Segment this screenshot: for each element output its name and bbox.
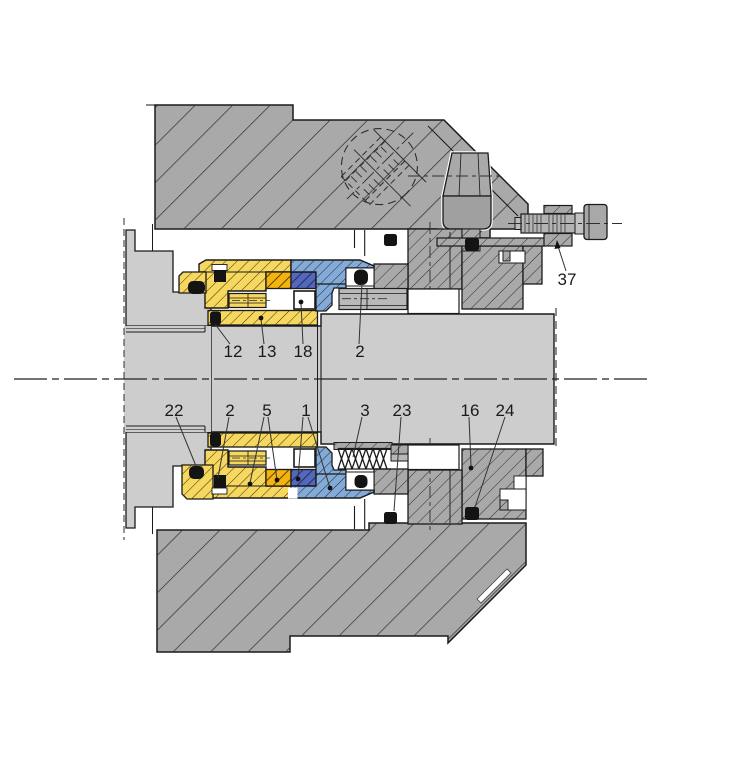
svg-text:2: 2 — [355, 342, 364, 361]
svg-text:16: 16 — [461, 401, 480, 420]
svg-text:5: 5 — [262, 401, 271, 420]
svg-text:37: 37 — [558, 270, 577, 289]
svg-text:24: 24 — [496, 401, 515, 420]
svg-text:12: 12 — [224, 342, 243, 361]
svg-text:2: 2 — [225, 401, 234, 420]
svg-text:13: 13 — [258, 342, 277, 361]
svg-text:22: 22 — [165, 401, 184, 420]
svg-text:1: 1 — [301, 401, 310, 420]
svg-text:23: 23 — [393, 401, 412, 420]
svg-text:3: 3 — [360, 401, 369, 420]
svg-text:18: 18 — [294, 342, 313, 361]
